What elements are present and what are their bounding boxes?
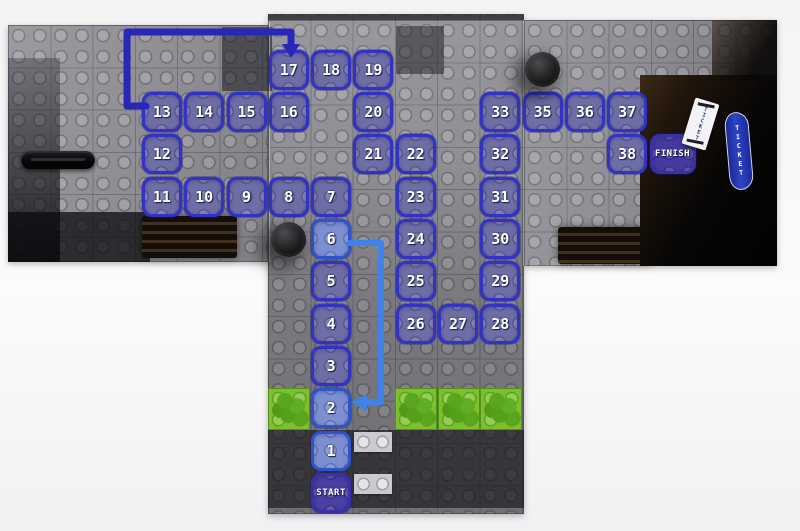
board-space-35: 35 [523, 92, 563, 132]
green-clover-cell [268, 388, 310, 430]
board-space-7: 7 [311, 177, 351, 217]
black-round-piece [271, 222, 306, 257]
dark-bricks-top-left [222, 27, 272, 91]
board-space-22: 22 [396, 134, 436, 174]
green-clover-cell [395, 388, 437, 430]
board-space-31: 31 [480, 177, 520, 217]
board-space-27: 27 [438, 304, 478, 344]
green-clover-cell [480, 388, 522, 430]
board-space-3: 3 [311, 346, 351, 386]
board-space-18: 18 [311, 50, 351, 90]
board-space-24: 24 [396, 219, 436, 259]
board-space-start: START [311, 473, 351, 513]
board-space-4: 4 [311, 304, 351, 344]
board-space-36: 36 [565, 92, 605, 132]
black-grille-piece [21, 151, 95, 169]
board-space-17: 17 [269, 50, 309, 90]
board-space-14: 14 [184, 92, 224, 132]
lego-board-game-photo: { "game": { "type": "lego-style race boa… [0, 0, 800, 531]
board-space-5: 5 [311, 261, 351, 301]
board-space-9: 9 [227, 177, 267, 217]
board-space-26: 26 [396, 304, 436, 344]
dark-tunnel-right-top [712, 20, 777, 80]
light-gray-plate [354, 474, 392, 494]
green-clover-cell [438, 388, 480, 430]
board-space-25: 25 [396, 261, 436, 301]
board-space-23: 23 [396, 177, 436, 217]
board-space-33: 33 [480, 92, 520, 132]
board-space-20: 20 [353, 92, 393, 132]
board-space-10: 10 [184, 177, 224, 217]
track-steps-right [558, 227, 651, 264]
board-space-2: 2 [311, 388, 351, 428]
board-space-8: 8 [269, 177, 309, 217]
dark-bricks-top-middle [396, 26, 444, 74]
board-space-1: 1 [311, 431, 351, 471]
board-space-32: 32 [480, 134, 520, 174]
dark-shading-bottom-middle [268, 430, 524, 508]
board-space-12: 12 [142, 134, 182, 174]
board-space-29: 29 [480, 261, 520, 301]
light-gray-plate [354, 432, 392, 452]
board-space-11: 11 [142, 177, 182, 217]
track-steps-left [142, 216, 237, 258]
ticket-banner-label: TICKET [733, 124, 744, 178]
ticket-paper-label: TICKET [693, 106, 709, 142]
board-space-16: 16 [269, 92, 309, 132]
board-space-19: 19 [353, 50, 393, 90]
dark-shading-left-bottom [8, 212, 150, 262]
board-space-21: 21 [353, 134, 393, 174]
board-space-15: 15 [227, 92, 267, 132]
board-space-37: 37 [607, 92, 647, 132]
jigsaw-seam-right [523, 20, 524, 266]
board-space-30: 30 [480, 219, 520, 259]
board-space-6: 6 [311, 219, 351, 259]
board-space-13: 13 [142, 92, 182, 132]
board-space-28: 28 [480, 304, 520, 344]
board-space-38: 38 [607, 134, 647, 174]
